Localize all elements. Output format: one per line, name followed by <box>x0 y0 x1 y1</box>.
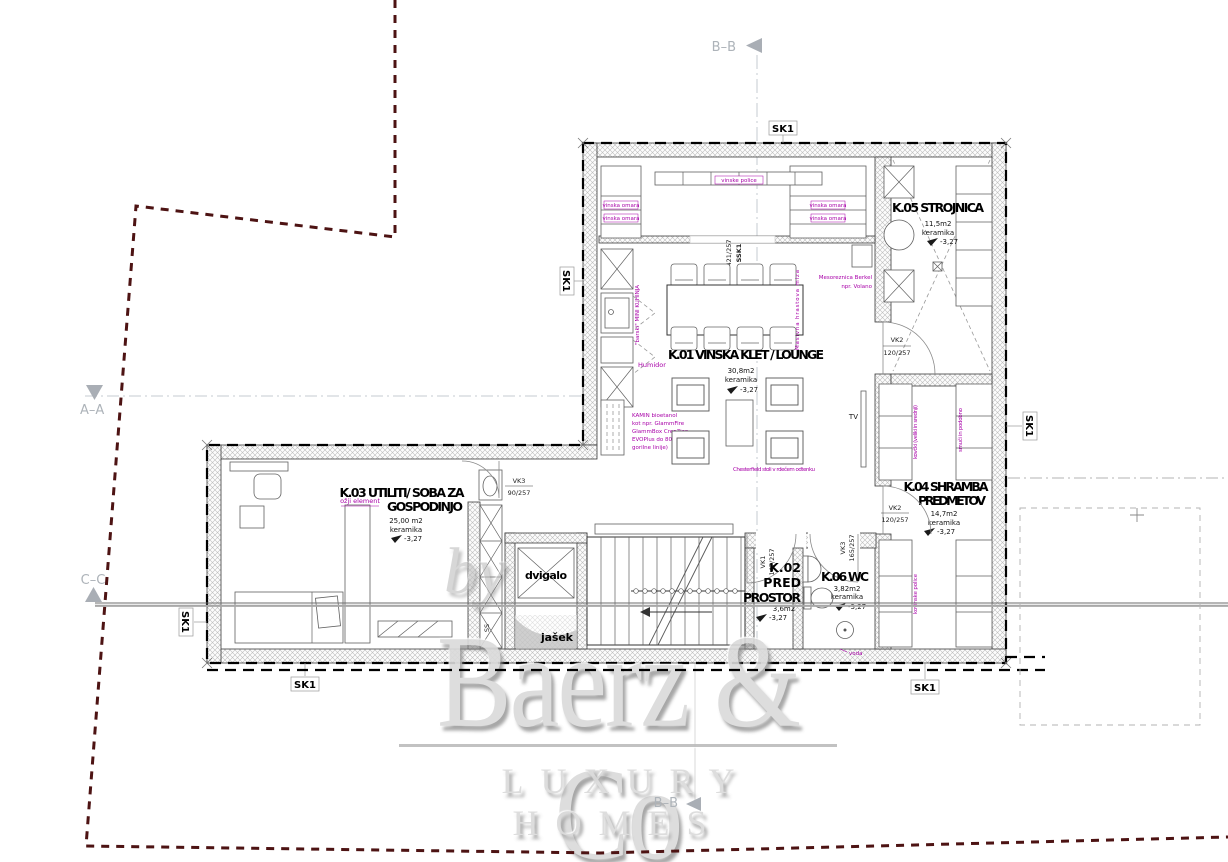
section-markers: B–B B–B A–A C–C <box>80 38 762 811</box>
section-triangle-bb-bottom <box>686 797 701 811</box>
section-marker-bb-bottom: B–B <box>654 796 678 811</box>
section-triangle-bb-top <box>746 38 762 53</box>
floor-plan-page: vinska omara vinska omara vinska omara v… <box>0 0 1228 862</box>
overlay-layer: B–B B–B A–A C–C <box>0 0 1228 862</box>
section-triangle-aa <box>86 385 103 400</box>
section-marker-bb-top: B–B <box>712 40 736 55</box>
section-marker-cc: C–C <box>81 573 106 588</box>
section-line-cc <box>95 603 1228 606</box>
section-triangle-cc <box>85 587 102 602</box>
reference-outline-right <box>1008 478 1228 725</box>
section-marker-aa: A–A <box>80 403 104 418</box>
